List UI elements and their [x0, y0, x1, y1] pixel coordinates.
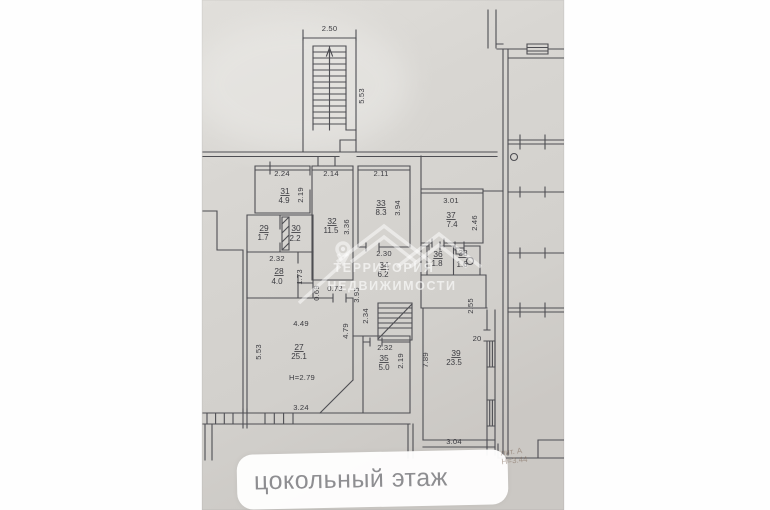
svg-text:5.53: 5.53 — [254, 344, 263, 360]
svg-text:8.3: 8.3 — [375, 208, 387, 217]
svg-text:1.7: 1.7 — [257, 233, 269, 242]
svg-text:4.49: 4.49 — [293, 319, 309, 328]
svg-text:3.01: 3.01 — [443, 196, 459, 205]
svg-text:7.4: 7.4 — [446, 220, 458, 229]
watermark-line2: НЕДВИЖИМОСТИ — [327, 279, 456, 293]
svg-text:4.79: 4.79 — [341, 323, 350, 339]
floor-plan-photo-page: 2.50 5.53 2.24 31 4.9 2.19 29 1.7 30 2.2… — [0, 0, 770, 510]
room-28-number: 28 — [274, 266, 284, 276]
svg-text:2.55: 2.55 — [466, 298, 475, 314]
room-29-number: 29 — [259, 223, 269, 233]
svg-text:2.30: 2.30 — [376, 249, 392, 258]
ceiling-height-note: Н=2.79 — [289, 373, 315, 382]
door-width-dim: 20 — [473, 334, 482, 343]
room-36-number: 36 — [433, 249, 443, 259]
stair-depth-dim: 5.53 — [357, 88, 366, 104]
svg-text:2.19: 2.19 — [296, 187, 305, 203]
svg-text:7.89: 7.89 — [421, 352, 430, 368]
svg-text:3.04: 3.04 — [446, 437, 462, 446]
room-35-number: 35 — [379, 353, 389, 363]
paper-glare — [190, 17, 410, 153]
room-32-number: 32 — [327, 216, 337, 226]
room-30-number: 30 — [291, 223, 301, 233]
svg-text:4.0: 4.0 — [271, 277, 283, 286]
svg-text:25.1: 25.1 — [291, 352, 307, 361]
room-37-number: 37 — [446, 210, 456, 220]
inner-stair-dim: 2.34 — [361, 308, 370, 324]
room-29-labels: 29 1.7 — [257, 223, 269, 242]
svg-text:2.11: 2.11 — [373, 169, 388, 178]
svg-text:5.0: 5.0 — [378, 363, 390, 372]
room-33-number: 33 — [376, 198, 386, 208]
room-39-number: 39 — [451, 348, 461, 358]
svg-text:3.24: 3.24 — [293, 403, 309, 412]
svg-text:11.5: 11.5 — [324, 226, 340, 235]
svg-text:23.5: 23.5 — [446, 358, 462, 367]
svg-text:2.24: 2.24 — [274, 169, 290, 178]
watermark-pin-icon — [341, 247, 345, 251]
svg-text:2.32: 2.32 — [269, 254, 285, 263]
svg-text:3.36: 3.36 — [342, 219, 351, 235]
svg-text:2.2: 2.2 — [289, 234, 301, 243]
floor-label-overlay: цокольный этаж — [236, 449, 508, 510]
handwritten-note: лит. А Н=3.44 — [500, 446, 528, 467]
svg-text:2.19: 2.19 — [396, 353, 405, 369]
svg-text:2.46: 2.46 — [470, 215, 479, 231]
stair-width-dim: 2.50 — [322, 24, 338, 33]
room-27-number: 27 — [294, 342, 304, 352]
svg-text:3.94: 3.94 — [393, 200, 402, 216]
floor-plan-drawing: 2.50 5.53 2.24 31 4.9 2.19 29 1.7 30 2.2… — [0, 0, 770, 510]
watermark-line1: ТЕРРИТОРИЯ — [334, 261, 435, 275]
svg-text:1.73: 1.73 — [295, 269, 304, 285]
svg-text:4.9: 4.9 — [278, 196, 290, 205]
room-31-number: 31 — [280, 186, 290, 196]
svg-text:2.32: 2.32 — [377, 343, 393, 352]
floor-label-text: цокольный этаж — [254, 463, 448, 496]
svg-text:2.14: 2.14 — [323, 169, 339, 178]
